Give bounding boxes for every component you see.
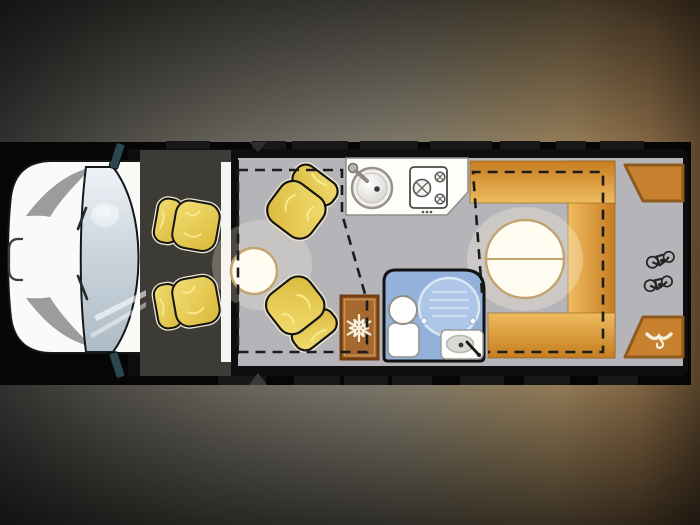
mirror-bottom (109, 351, 126, 379)
body-molding (556, 141, 586, 150)
hob (410, 167, 447, 213)
body-molding (360, 141, 418, 150)
toilet-base (388, 323, 419, 357)
windshield-glare (96, 206, 110, 218)
body-molding (294, 376, 340, 385)
hand-shower-head (477, 353, 481, 357)
washbasin-drain (459, 343, 464, 348)
body-molding (166, 141, 210, 150)
body-molding (392, 376, 432, 385)
hob-knob (426, 211, 429, 214)
fridge (341, 296, 378, 359)
kitchen (346, 158, 468, 215)
sink-drain (374, 186, 380, 192)
shower-fitting (470, 318, 476, 324)
driver-seat (152, 195, 222, 253)
body-molding (600, 141, 644, 150)
body-molding (598, 376, 638, 385)
toilet-bowl (389, 296, 417, 324)
body-molding (430, 141, 492, 150)
hob-knob (430, 211, 433, 214)
screenshot-stage (0, 0, 700, 525)
body-molding (292, 141, 348, 150)
hob-knob (422, 211, 425, 214)
passenger-seat (152, 274, 222, 332)
body-molding (524, 376, 570, 385)
body-molding (500, 141, 540, 150)
body-molding (460, 376, 504, 385)
floorplan-svg (0, 0, 700, 525)
bench-top (470, 161, 615, 203)
bathroom (384, 270, 484, 361)
dinette (467, 161, 615, 358)
shower-fitting (421, 318, 427, 324)
cab (8, 142, 238, 379)
body-molding (344, 376, 388, 385)
